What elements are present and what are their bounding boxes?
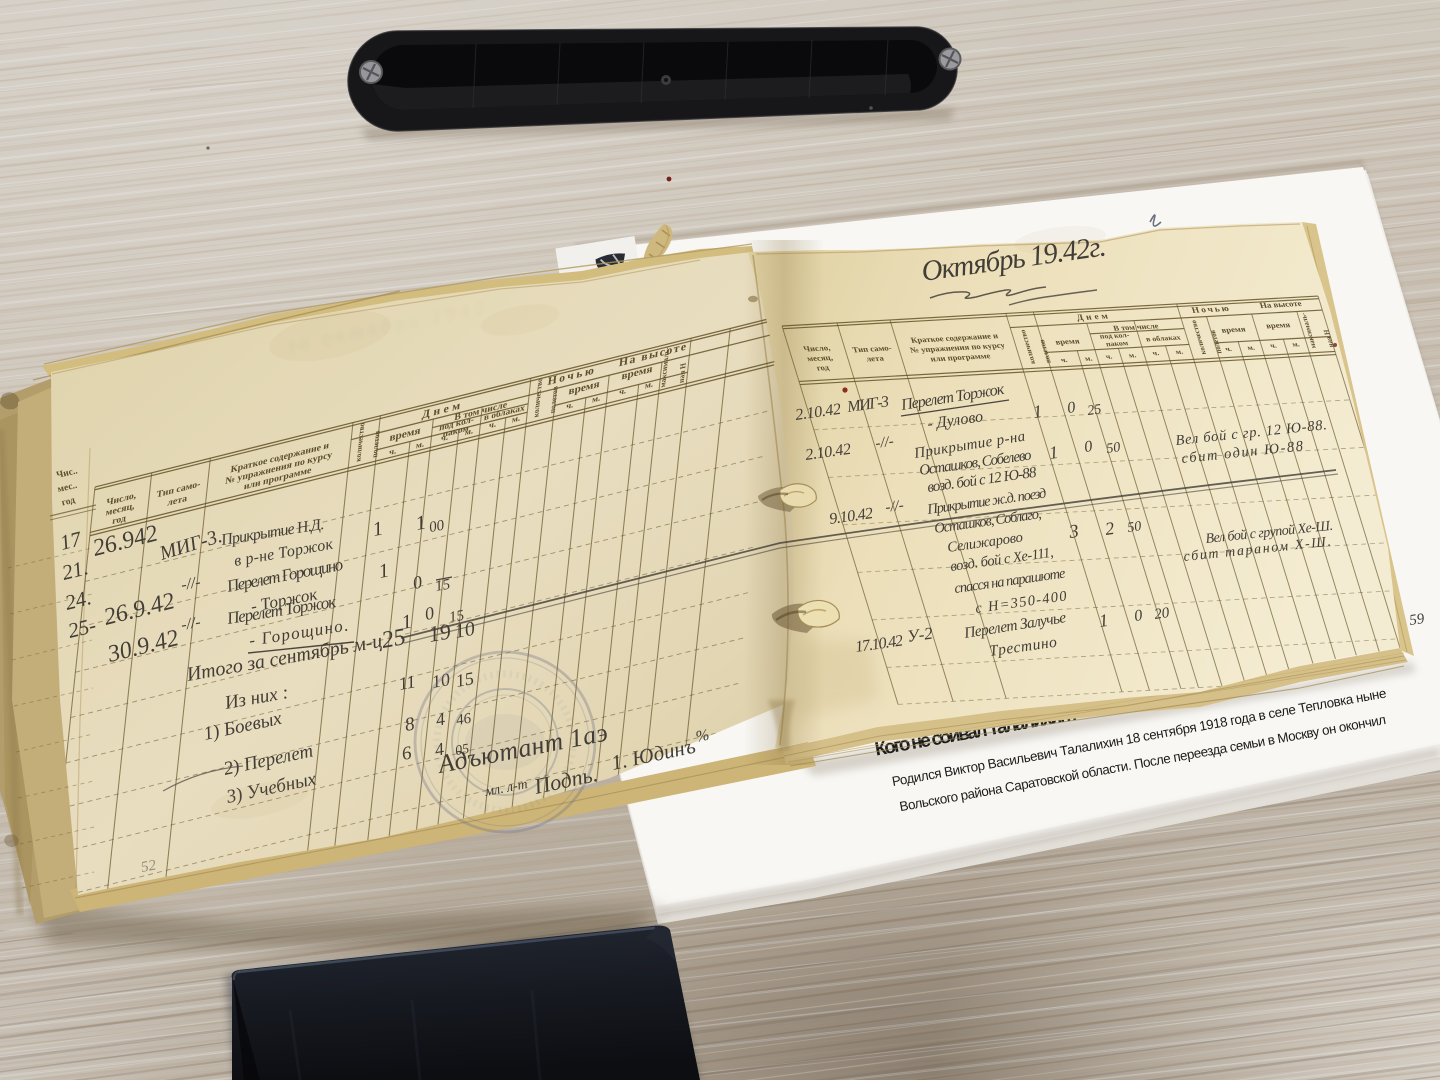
svg-text:паком: паком bbox=[1105, 339, 1130, 349]
svg-text:50: 50 bbox=[1105, 440, 1121, 457]
svg-text:25: 25 bbox=[380, 624, 408, 654]
svg-text:20: 20 bbox=[1153, 605, 1171, 623]
svg-text:10: 10 bbox=[453, 618, 477, 643]
svg-text:-//-: -//- bbox=[884, 498, 904, 516]
svg-text:месяц,: месяц, bbox=[806, 353, 834, 363]
svg-text:время: время bbox=[1220, 325, 1247, 335]
svg-text:-//-: -//- bbox=[180, 614, 202, 634]
svg-text:59: 59 bbox=[1408, 611, 1426, 629]
svg-text:Днем: Днем bbox=[1075, 311, 1112, 322]
svg-text:время: время bbox=[1265, 321, 1292, 331]
svg-text:У-2: У-2 bbox=[906, 624, 934, 646]
svg-text:11: 11 bbox=[397, 671, 417, 694]
svg-text:25: 25 bbox=[1086, 402, 1102, 419]
svg-text:Число,: Число, bbox=[802, 344, 831, 354]
svg-text:-//-: -//- bbox=[180, 574, 202, 594]
svg-text:50: 50 bbox=[1126, 519, 1142, 536]
svg-text:лета: лета bbox=[865, 354, 886, 363]
svg-text:19: 19 bbox=[427, 618, 453, 646]
svg-text:время: время bbox=[1054, 337, 1081, 347]
svg-text:-//-: -//- bbox=[874, 434, 894, 452]
